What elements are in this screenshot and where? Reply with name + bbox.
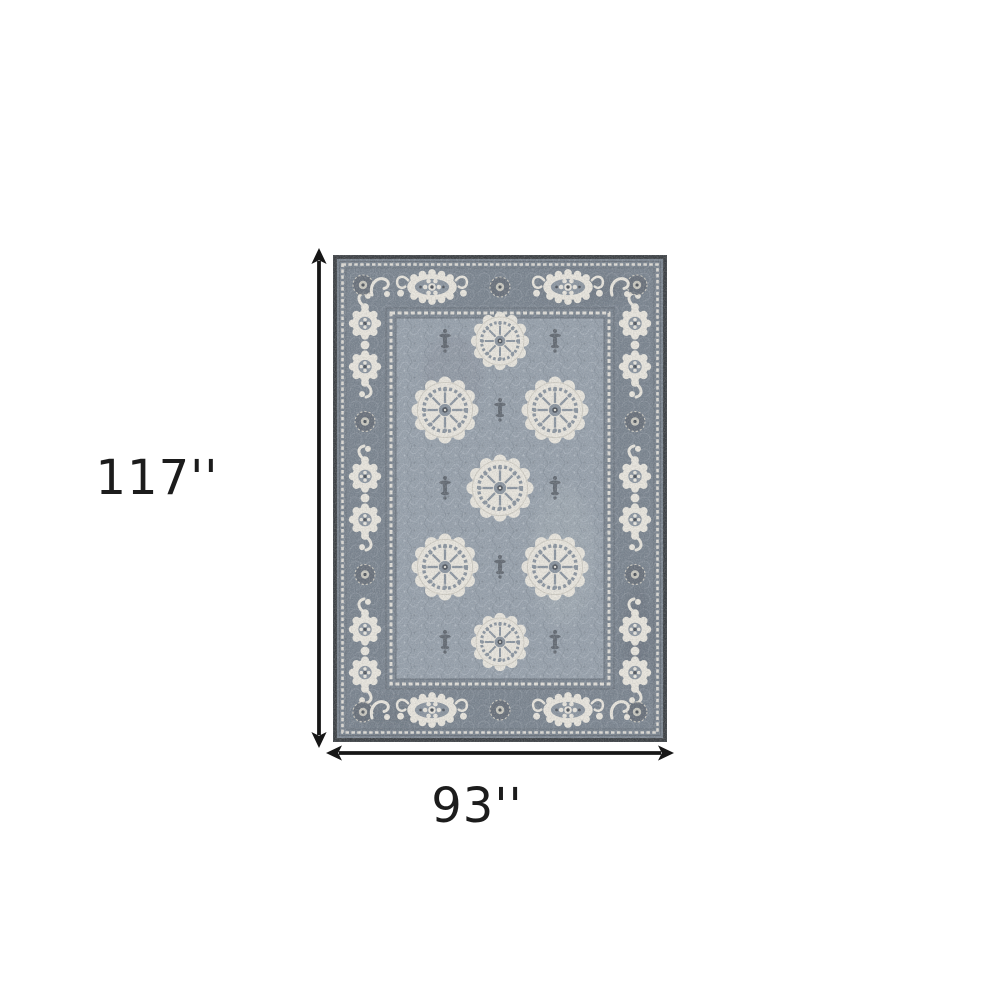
rug-texture-light xyxy=(333,255,667,742)
height-dimension-label: 117'' xyxy=(95,454,218,502)
product-dimension-diagram: 117'' 93'' xyxy=(0,0,1000,1000)
width-dimension-arrow xyxy=(325,742,675,764)
width-dimension-label: 93'' xyxy=(431,782,522,830)
height-dimension-arrow xyxy=(308,247,330,749)
rug-image xyxy=(333,255,667,742)
rug-graphic xyxy=(333,255,667,742)
